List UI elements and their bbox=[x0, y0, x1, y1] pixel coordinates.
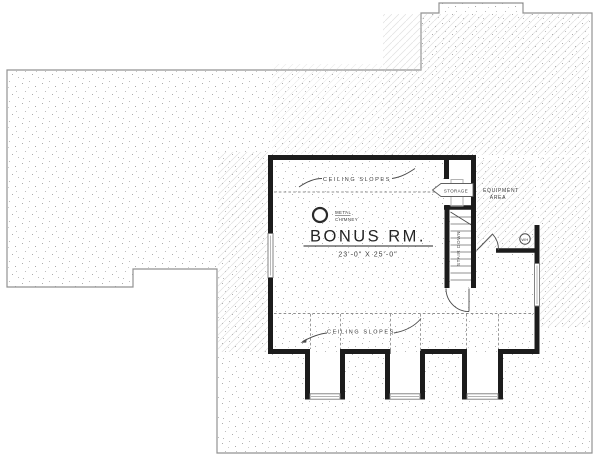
water-heater-label: WH bbox=[521, 237, 528, 242]
equipment-area-label-line1: EQUIPMENT bbox=[483, 188, 519, 194]
ceiling-slopes-top-label: CEILING SLOPES bbox=[323, 177, 391, 183]
ceiling-slopes-bottom-label: CEILING SLOPES bbox=[327, 330, 395, 336]
chimney-label-line2: CHIMNEY bbox=[335, 217, 358, 222]
equipment-area-label-line2: AREA bbox=[490, 195, 506, 201]
floor-plan-drawing: METAL CHIMNEY WH CEILING SLOPES BONUS RM… bbox=[0, 0, 600, 459]
floor-plan-canvas: METAL CHIMNEY WH CEILING SLOPES BONUS RM… bbox=[0, 0, 600, 459]
water-heater: WH bbox=[520, 234, 530, 244]
stair-down-label: STAIR DOWN bbox=[456, 231, 461, 266]
storage-label: STORAGE bbox=[444, 188, 468, 193]
room-name-label: BONUS RM. bbox=[310, 228, 426, 246]
chimney-label-line1: METAL bbox=[335, 210, 351, 215]
room-dimensions-label: 23'-0" X 25'-0" bbox=[338, 252, 397, 259]
chimney-circle bbox=[313, 208, 327, 222]
